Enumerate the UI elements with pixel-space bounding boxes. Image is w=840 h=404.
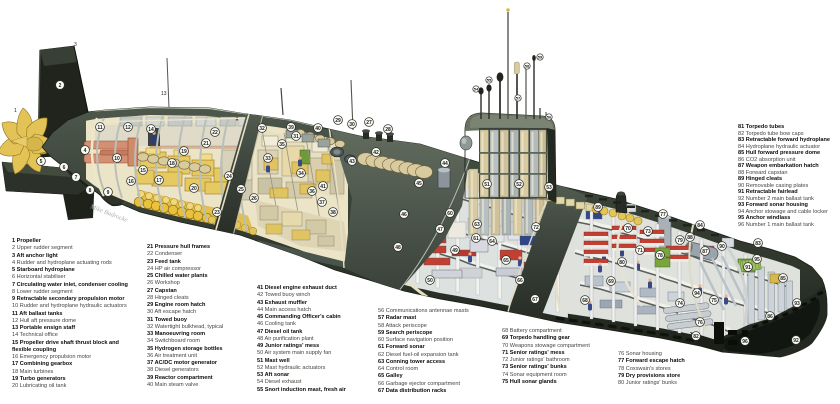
svg-text:20: 20 — [191, 186, 197, 192]
svg-text:76: 76 — [697, 320, 703, 326]
svg-text:72: 72 — [533, 225, 539, 231]
svg-text:31: 31 — [293, 134, 299, 140]
svg-text:53: 53 — [546, 185, 552, 191]
svg-text:39: 39 — [288, 125, 294, 131]
svg-text:32: 32 — [259, 126, 265, 132]
svg-text:48: 48 — [395, 245, 401, 251]
svg-text:19: 19 — [181, 149, 187, 155]
svg-text:3: 3 — [74, 42, 77, 48]
svg-text:25: 25 — [238, 187, 244, 193]
svg-text:12: 12 — [125, 125, 131, 131]
svg-text:58: 58 — [525, 64, 530, 69]
svg-text:73: 73 — [645, 229, 651, 235]
svg-text:70: 70 — [625, 226, 631, 232]
svg-text:86: 86 — [767, 314, 773, 320]
svg-text:40: 40 — [315, 126, 321, 132]
svg-text:84: 84 — [697, 223, 703, 229]
svg-text:71: 71 — [637, 248, 643, 254]
svg-text:15: 15 — [140, 168, 146, 174]
svg-text:9: 9 — [107, 190, 110, 196]
svg-text:82: 82 — [693, 334, 699, 340]
svg-text:93: 93 — [794, 301, 800, 307]
svg-text:26: 26 — [251, 196, 257, 202]
svg-text:45: 45 — [416, 181, 422, 187]
svg-text:68: 68 — [582, 298, 588, 304]
svg-text:35: 35 — [279, 142, 285, 148]
svg-text:52: 52 — [516, 182, 522, 188]
svg-text:61: 61 — [473, 236, 479, 242]
svg-text:90: 90 — [719, 244, 725, 250]
svg-text:22: 22 — [212, 130, 218, 136]
svg-text:10: 10 — [114, 156, 120, 162]
svg-text:49: 49 — [452, 248, 458, 254]
svg-text:69: 69 — [608, 279, 614, 285]
svg-text:57: 57 — [516, 96, 521, 101]
svg-text:46: 46 — [401, 212, 407, 218]
svg-text:79: 79 — [677, 238, 683, 244]
svg-text:4: 4 — [84, 148, 87, 154]
svg-text:87: 87 — [702, 249, 708, 255]
svg-text:28: 28 — [385, 127, 391, 133]
svg-text:23: 23 — [214, 210, 220, 216]
svg-text:50: 50 — [427, 278, 433, 284]
svg-text:74: 74 — [677, 301, 683, 307]
svg-text:27: 27 — [366, 120, 372, 126]
svg-text:65: 65 — [503, 258, 509, 264]
svg-text:42: 42 — [373, 150, 379, 156]
svg-text:37: 37 — [319, 200, 325, 206]
svg-text:41: 41 — [320, 184, 326, 190]
svg-text:63: 63 — [474, 222, 480, 228]
svg-text:11: 11 — [97, 125, 103, 131]
svg-text:18: 18 — [169, 161, 175, 167]
svg-text:21: 21 — [203, 141, 209, 147]
svg-text:64: 64 — [489, 239, 495, 245]
svg-text:13: 13 — [161, 91, 167, 97]
svg-text:55: 55 — [487, 78, 492, 83]
svg-text:83: 83 — [755, 241, 761, 247]
svg-text:44: 44 — [442, 161, 448, 167]
svg-text:94: 94 — [694, 291, 700, 297]
svg-text:8: 8 — [89, 188, 92, 194]
svg-text:59: 59 — [538, 55, 543, 60]
svg-text:43: 43 — [349, 159, 355, 165]
svg-text:80: 80 — [619, 260, 625, 266]
svg-text:56: 56 — [547, 115, 552, 120]
svg-text:2: 2 — [59, 83, 62, 89]
svg-text:66: 66 — [517, 278, 523, 284]
svg-text:17: 17 — [156, 178, 162, 184]
svg-text:6: 6 — [63, 165, 66, 171]
svg-text:51: 51 — [484, 182, 490, 188]
svg-text:89: 89 — [595, 205, 601, 211]
svg-text:Mike Badrocke: Mike Badrocke — [88, 203, 128, 224]
svg-text:92: 92 — [793, 338, 799, 344]
svg-text:14: 14 — [148, 127, 154, 133]
svg-text:30: 30 — [349, 122, 355, 128]
svg-text:75: 75 — [711, 298, 717, 304]
svg-text:78: 78 — [657, 253, 663, 259]
svg-text:1: 1 — [14, 108, 17, 114]
svg-text:67: 67 — [532, 297, 538, 303]
svg-text:95: 95 — [754, 257, 760, 263]
svg-text:7: 7 — [75, 175, 78, 181]
svg-text:33: 33 — [265, 156, 271, 162]
svg-text:77: 77 — [660, 212, 666, 218]
svg-text:5: 5 — [40, 159, 43, 165]
svg-text:38: 38 — [330, 210, 336, 216]
svg-text:96: 96 — [742, 339, 748, 345]
svg-text:34: 34 — [298, 171, 304, 177]
svg-text:24: 24 — [226, 174, 232, 180]
svg-text:85: 85 — [780, 276, 786, 282]
svg-text:88: 88 — [687, 235, 693, 241]
svg-text:36: 36 — [309, 189, 315, 195]
svg-text:16: 16 — [128, 179, 134, 185]
svg-text:60: 60 — [447, 211, 453, 217]
svg-text:29: 29 — [335, 118, 341, 124]
svg-text:91: 91 — [745, 265, 751, 271]
svg-text:54: 54 — [474, 87, 479, 92]
svg-text:47: 47 — [437, 227, 443, 233]
